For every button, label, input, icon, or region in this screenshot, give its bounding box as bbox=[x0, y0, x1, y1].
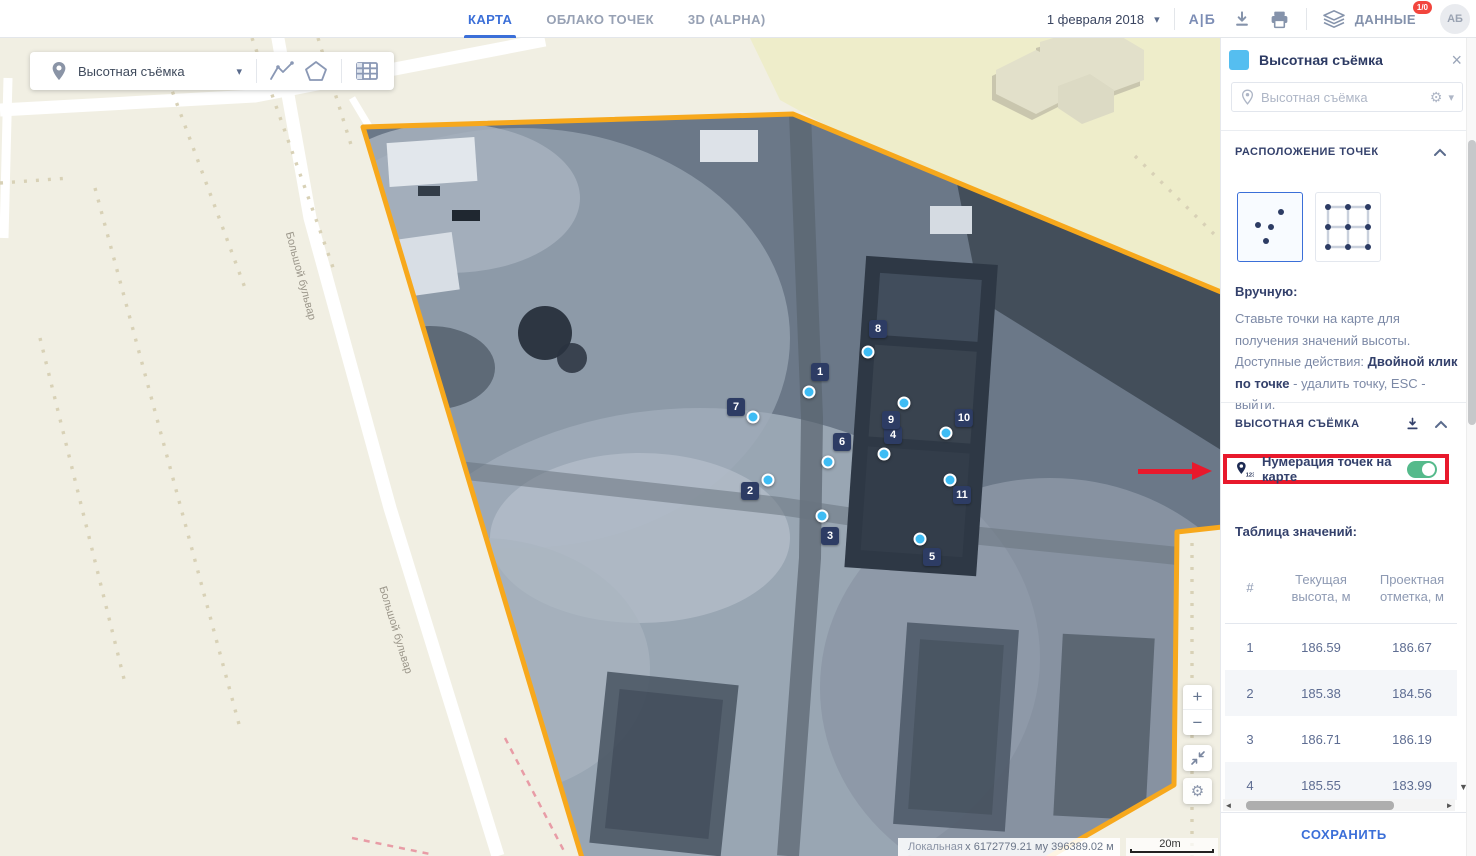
pin-cursor-icon bbox=[1240, 89, 1255, 105]
survey-point-dot[interactable] bbox=[898, 397, 911, 410]
survey-section-title: ВЫСОТНАЯ СЪЁМКА bbox=[1235, 418, 1360, 430]
cell-point-number: 2 bbox=[1225, 686, 1275, 701]
map-layer-toolbar: Высотная съёмка ▾ bbox=[30, 52, 394, 90]
gear-icon[interactable]: ⚙ bbox=[1430, 89, 1443, 106]
cell-current-height: 185.38 bbox=[1275, 686, 1367, 701]
survey-point-dot[interactable] bbox=[822, 456, 835, 469]
coordinates-statusbar: Локальная x 6172779.21 м y 396389.02 м bbox=[898, 838, 1120, 856]
layer-settings-panel: Высотная съёмка × ⚙ ▾ РАСПОЛОЖЕНИЕ ТОЧЕК bbox=[1220, 38, 1476, 856]
survey-point-dot[interactable] bbox=[940, 427, 953, 440]
scale-line bbox=[1130, 849, 1214, 853]
download-button[interactable] bbox=[1230, 7, 1254, 31]
app-window: КАРТА ОБЛАКО ТОЧЕК 3D (ALPHA) 1 февраля … bbox=[0, 0, 1476, 856]
collapse-arrows-icon bbox=[1190, 750, 1206, 766]
date-value: 1 февраля 2018 bbox=[1047, 12, 1144, 27]
data-count-badge: 1/0 bbox=[1413, 1, 1432, 14]
basemap bbox=[0, 38, 1220, 856]
grid-tool-button[interactable] bbox=[350, 54, 384, 88]
cell-point-number: 1 bbox=[1225, 640, 1275, 655]
points-layout-section-title: РАСПОЛОЖЕНИЕ ТОЧЕК bbox=[1235, 146, 1379, 158]
cell-design-elevation: 186.19 bbox=[1367, 732, 1457, 747]
gear-icon: ⚙ bbox=[1191, 782, 1204, 800]
survey-point-dot[interactable] bbox=[803, 386, 816, 399]
survey-point-dot[interactable] bbox=[762, 474, 775, 487]
points-mode-grid-card[interactable] bbox=[1315, 192, 1381, 262]
zoom-out-button[interactable]: − bbox=[1183, 710, 1212, 735]
column-header-design-elevation: Проектная отметка, м bbox=[1367, 571, 1457, 605]
layer-select-value: Высотная съёмка bbox=[78, 64, 185, 79]
survey-point-marker: 3 bbox=[821, 527, 839, 545]
panel-vertical-scrollbar[interactable] bbox=[1466, 38, 1476, 856]
table-header-row: # Текущая высота, м Проектная отметка, м bbox=[1225, 552, 1457, 624]
survey-point-dot[interactable] bbox=[747, 411, 760, 424]
polygon-icon bbox=[304, 60, 328, 82]
tab-point-cloud[interactable]: ОБЛАКО ТОЧЕК bbox=[546, 0, 654, 38]
layer-search-input[interactable] bbox=[1261, 90, 1424, 105]
chevron-down-icon: ▾ bbox=[1154, 13, 1160, 26]
table-row[interactable]: 3 186.71 186.19 bbox=[1225, 716, 1457, 762]
location-pin-icon bbox=[50, 60, 68, 82]
divider bbox=[1306, 8, 1307, 30]
divider bbox=[256, 59, 257, 83]
table-row[interactable]: 4 185.55 183.99 bbox=[1225, 762, 1457, 800]
survey-point-dot[interactable] bbox=[862, 346, 875, 359]
cell-design-elevation: 186.67 bbox=[1367, 640, 1457, 655]
survey-point-marker: 6 bbox=[833, 433, 851, 451]
cell-current-height: 185.55 bbox=[1275, 778, 1367, 793]
panel-title: Высотная съёмка bbox=[1259, 52, 1441, 68]
survey-point-marker: 8 bbox=[869, 320, 887, 338]
table-horizontal-scrollbar[interactable]: ◄ ► bbox=[1223, 799, 1455, 811]
chevron-up-icon[interactable] bbox=[1434, 420, 1448, 429]
table-grid-icon bbox=[355, 61, 379, 81]
scrollbar-thumb[interactable] bbox=[1468, 140, 1476, 425]
survey-point-marker: 11 bbox=[953, 486, 971, 504]
table-row[interactable]: 2 185.38 184.56 bbox=[1225, 670, 1457, 716]
layer-color-swatch bbox=[1229, 50, 1249, 70]
column-header-number: # bbox=[1225, 580, 1275, 595]
values-table: # Текущая высота, м Проектная отметка, м… bbox=[1225, 552, 1457, 800]
tab-map[interactable]: КАРТА bbox=[468, 0, 512, 38]
collapse-view-button[interactable] bbox=[1183, 745, 1212, 771]
compare-ab-button[interactable]: А|Б bbox=[1189, 11, 1216, 27]
chevron-up-icon[interactable] bbox=[1433, 148, 1447, 157]
scroll-right-arrow[interactable]: ► bbox=[1444, 801, 1455, 810]
map-canvas[interactable]: Большой бульвар Большой бульвар 1 2 3 4 … bbox=[0, 38, 1220, 856]
save-area: СОХРАНИТЬ bbox=[1221, 812, 1467, 856]
survey-point-dot[interactable] bbox=[944, 474, 957, 487]
scroll-left-arrow[interactable]: ◄ bbox=[1223, 801, 1234, 810]
coordinate-x: x 6172779.21 м bbox=[965, 841, 1042, 853]
print-icon bbox=[1269, 9, 1290, 30]
cell-design-elevation: 184.56 bbox=[1367, 686, 1457, 701]
layer-search-box: ⚙ ▾ bbox=[1231, 82, 1463, 112]
survey-point-marker: 10 bbox=[955, 409, 973, 427]
polygon-tool-button[interactable] bbox=[299, 54, 333, 88]
top-navigation-bar: КАРТА ОБЛАКО ТОЧЕК 3D (ALPHA) 1 февраля … bbox=[0, 0, 1476, 38]
save-button[interactable]: СОХРАНИТЬ bbox=[1301, 827, 1387, 842]
polyline-tool-button[interactable] bbox=[265, 54, 299, 88]
pin-numbers-icon: 123 bbox=[1235, 461, 1254, 478]
polyline-icon bbox=[269, 60, 295, 82]
zoom-controls: + − bbox=[1183, 685, 1212, 735]
divider bbox=[1174, 8, 1175, 30]
survey-point-marker: 9 bbox=[882, 411, 900, 429]
values-table-title: Таблица значений: bbox=[1235, 524, 1357, 539]
cell-design-elevation: 183.99 bbox=[1367, 778, 1457, 793]
numbering-highlight-box: 123 Нумерация точек на карте bbox=[1223, 454, 1449, 484]
user-avatar[interactable]: АБ bbox=[1440, 4, 1470, 34]
cell-current-height: 186.71 bbox=[1275, 732, 1367, 747]
cell-point-number: 4 bbox=[1225, 778, 1275, 793]
download-icon bbox=[1232, 9, 1252, 29]
manual-mode-title: Вручную: bbox=[1235, 284, 1297, 299]
numbering-toggle-label: Нумерация точек на карте bbox=[1262, 454, 1399, 484]
projection-label: Локальная bbox=[898, 841, 965, 853]
download-icon bbox=[1405, 416, 1420, 432]
data-button[interactable]: ДАННЫЕ 1/0 bbox=[1321, 9, 1426, 29]
points-mode-manual-card[interactable] bbox=[1237, 192, 1303, 262]
divider bbox=[341, 59, 342, 83]
divider bbox=[1221, 130, 1467, 131]
view-tabs: КАРТА ОБЛАКО ТОЧЕК 3D (ALPHA) bbox=[468, 0, 766, 38]
instruction-text: - удалить точку, bbox=[1290, 376, 1391, 391]
grid-points-icon bbox=[1320, 199, 1376, 255]
tab-3d-alpha[interactable]: 3D (ALPHA) bbox=[688, 0, 766, 38]
survey-point-marker: 1 bbox=[811, 363, 829, 381]
cell-current-height: 186.59 bbox=[1275, 640, 1367, 655]
divider bbox=[1221, 402, 1467, 403]
close-icon[interactable]: × bbox=[1451, 51, 1462, 69]
map-settings-button[interactable]: ⚙ bbox=[1183, 778, 1212, 804]
survey-point-dot[interactable] bbox=[816, 510, 829, 523]
table-row[interactable]: 1 186.59 186.67 bbox=[1225, 624, 1457, 670]
survey-point-marker: 7 bbox=[727, 398, 745, 416]
numbering-toggle[interactable] bbox=[1407, 461, 1437, 478]
survey-point-marker: 5 bbox=[923, 548, 941, 566]
survey-point-dot[interactable] bbox=[914, 533, 927, 546]
column-header-current-height: Текущая высота, м bbox=[1275, 571, 1367, 605]
layer-select-dropdown[interactable]: Высотная съёмка ▾ bbox=[78, 64, 248, 79]
cell-point-number: 3 bbox=[1225, 732, 1275, 747]
print-button[interactable] bbox=[1268, 7, 1292, 31]
scrollbar-thumb[interactable] bbox=[1246, 801, 1394, 810]
map-scalebar: 20m bbox=[1126, 838, 1218, 856]
chevron-down-icon: ▾ bbox=[236, 65, 242, 78]
survey-point-dot[interactable] bbox=[878, 448, 891, 461]
toggle-knob bbox=[1422, 463, 1435, 476]
survey-point-marker: 2 bbox=[741, 482, 759, 500]
data-button-label: ДАННЫЕ bbox=[1355, 12, 1416, 27]
export-survey-button[interactable] bbox=[1405, 416, 1420, 437]
layers-icon bbox=[1321, 9, 1347, 29]
date-selector[interactable]: 1 февраля 2018 ▾ bbox=[1047, 12, 1160, 27]
coordinate-y: y 396389.02 м bbox=[1043, 841, 1120, 853]
chevron-down-icon[interactable]: ▾ bbox=[1448, 91, 1454, 104]
scattered-points-icon bbox=[1244, 199, 1296, 255]
zoom-in-button[interactable]: + bbox=[1183, 685, 1212, 710]
svg-text:123: 123 bbox=[1246, 472, 1254, 478]
manual-mode-instructions: Ставьте точки на карте для получения зна… bbox=[1235, 308, 1461, 416]
